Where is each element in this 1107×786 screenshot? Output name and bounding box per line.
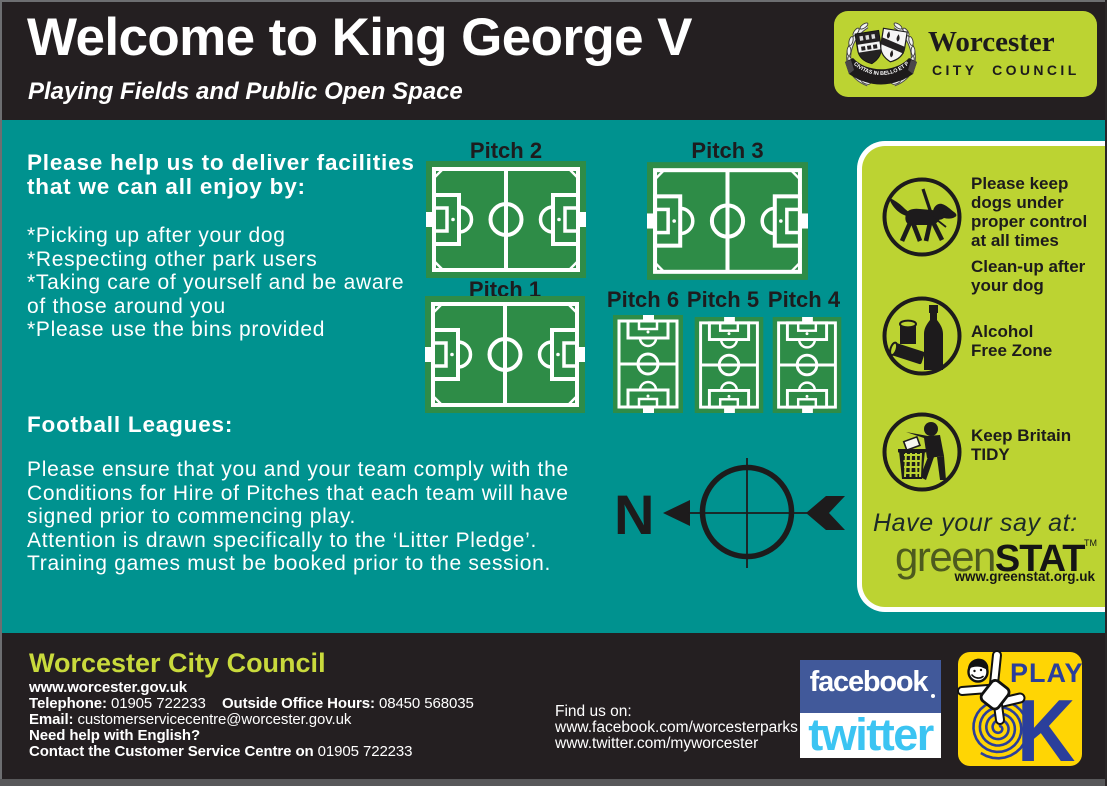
svg-text:TM: TM bbox=[1084, 538, 1097, 548]
svg-text:www.greenstat.org.uk: www.greenstat.org.uk bbox=[953, 569, 1095, 584]
svg-text:N: N bbox=[614, 483, 654, 546]
